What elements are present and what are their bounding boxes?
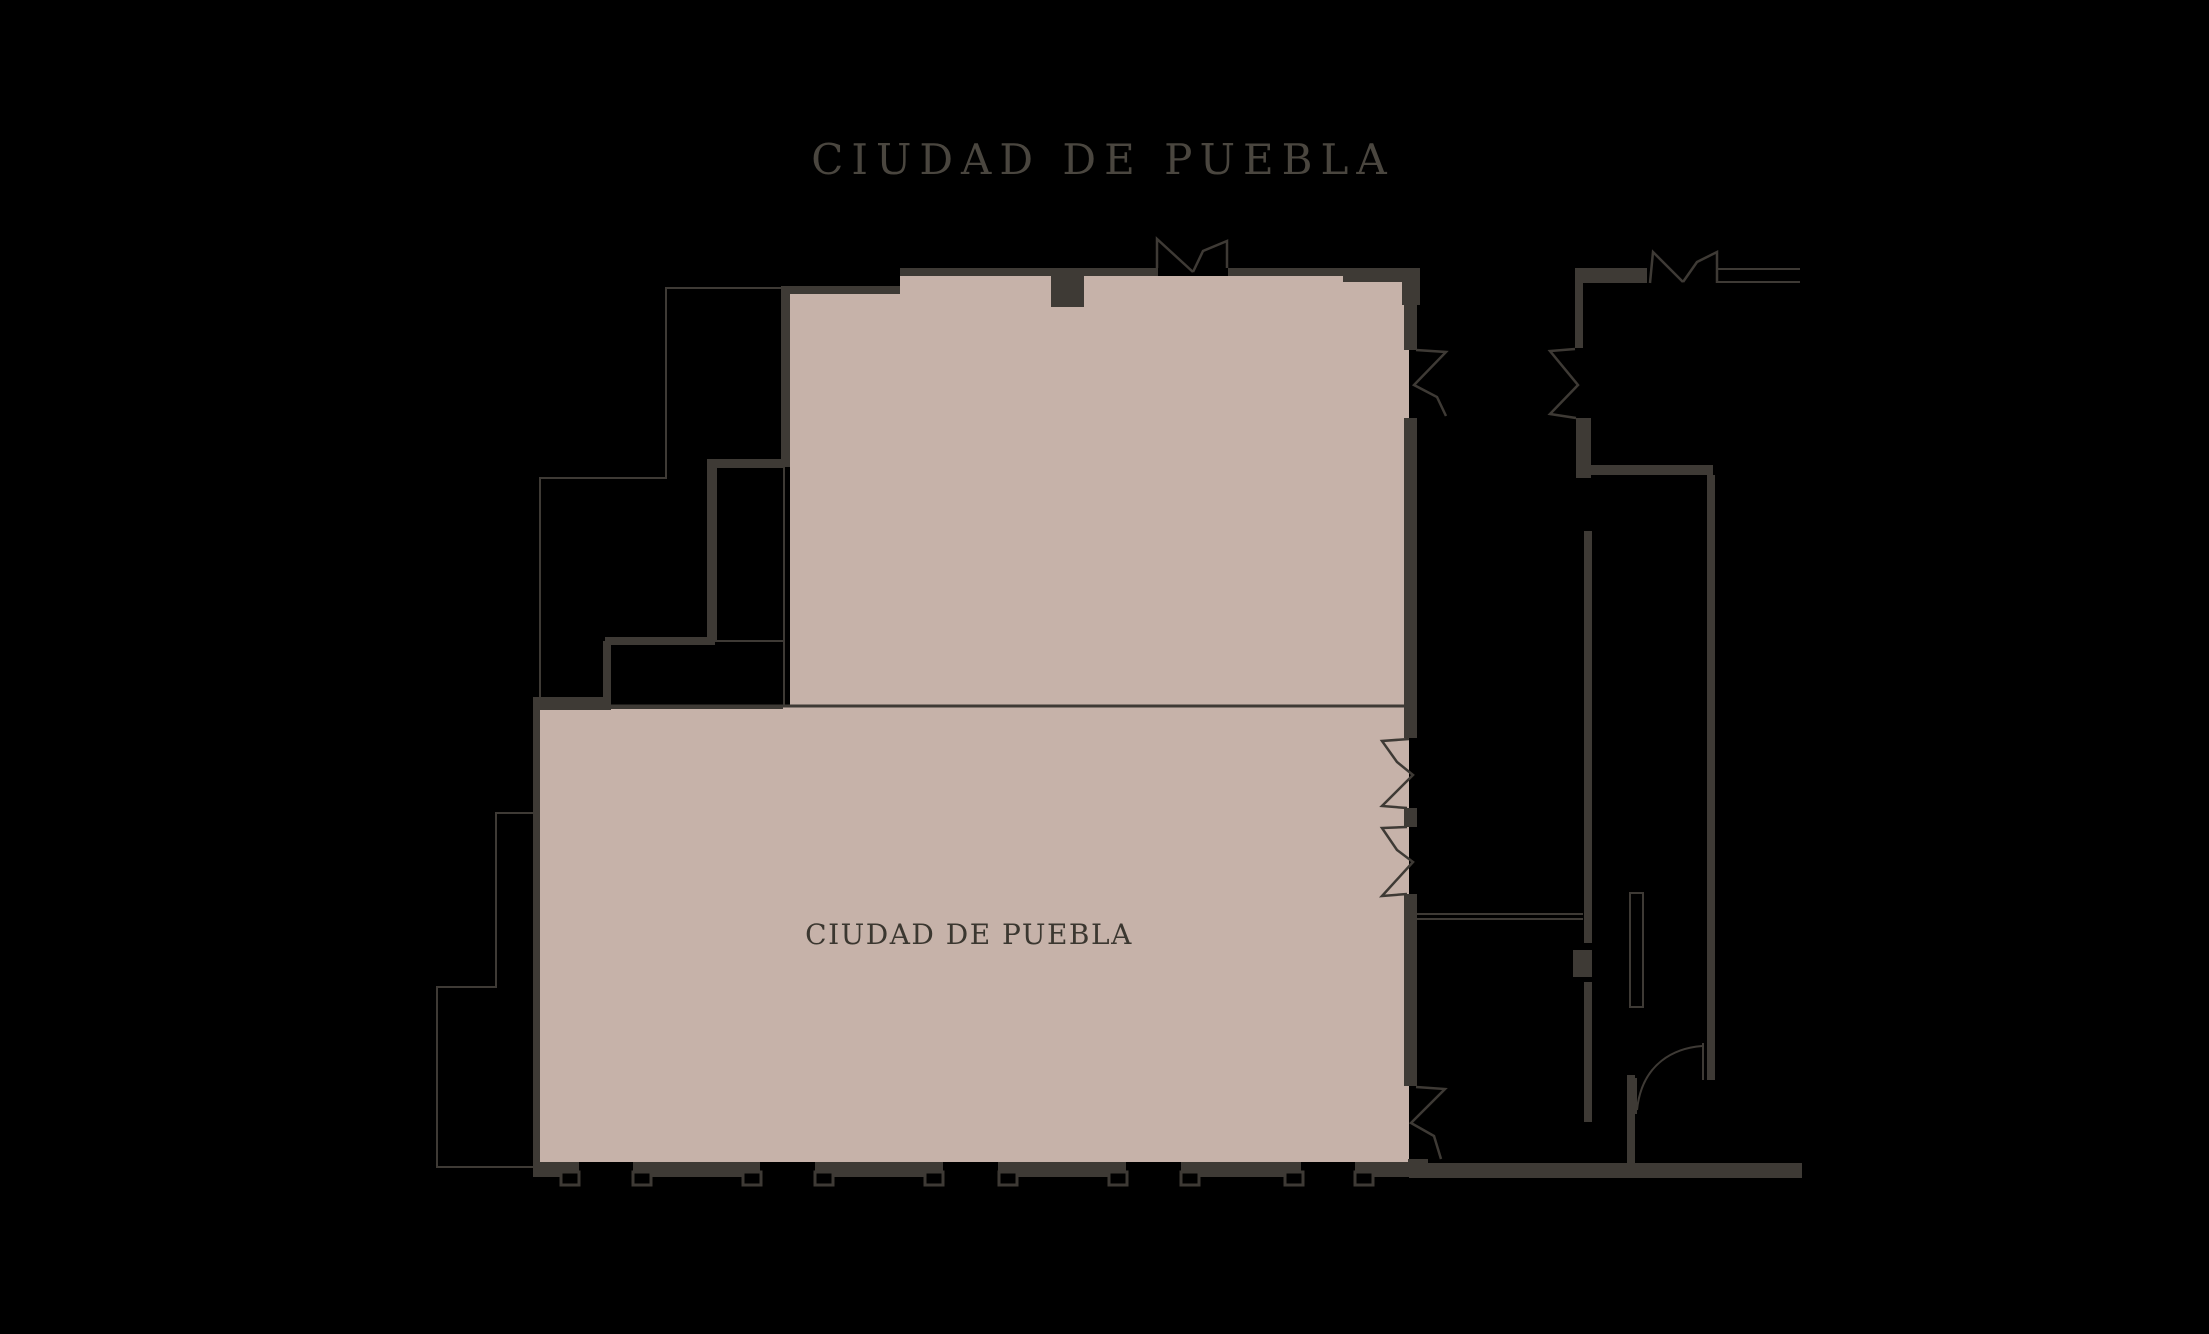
floor-plan-page: CIUDAD DE PUEBLA CIUDAD DE PUEBLA xyxy=(0,0,2209,1334)
annex-walls xyxy=(1409,268,1802,1178)
annex-left-wall-upper xyxy=(1575,268,1583,348)
upper-room-floor xyxy=(790,276,1417,705)
room-label: CIUDAD DE PUEBLA xyxy=(805,918,1133,951)
jamb-tick-icon xyxy=(633,1172,651,1185)
jog-wall-h2 xyxy=(605,637,715,645)
right-wall-mid xyxy=(1404,418,1417,705)
jamb-tick-icon xyxy=(1355,1172,1373,1185)
lower-room-left-wall xyxy=(533,697,540,1177)
lower-room-top-wall xyxy=(533,697,611,710)
wall-pier-block xyxy=(1051,268,1084,307)
annex-riser-wall xyxy=(1627,1075,1635,1163)
wall-break-icon xyxy=(1550,349,1578,418)
right-wall-seg2 xyxy=(1404,894,1417,1086)
jog-wall-v1 xyxy=(707,459,715,645)
jamb-tick-icon xyxy=(1109,1172,1127,1185)
jamb-tick-icon xyxy=(561,1172,579,1185)
annex-left-wall-low1 xyxy=(1584,531,1592,943)
bottom-facade-piers xyxy=(533,1162,1409,1177)
top-wall-main-band xyxy=(900,268,1158,276)
annex-right-wall xyxy=(1707,475,1715,1080)
left-step-outline xyxy=(437,813,533,1167)
wall-break-icon xyxy=(1414,350,1446,416)
jamb-tick-icon xyxy=(815,1172,833,1185)
left-wall-upper xyxy=(781,294,790,464)
annex-left-wall-mid xyxy=(1576,418,1591,478)
closet1-outline xyxy=(716,467,783,641)
door-swing-arc-icon xyxy=(1637,1046,1702,1110)
floor-plan-canvas: CIUDAD DE PUEBLA CIUDAD DE PUEBLA xyxy=(0,0,2209,1334)
unit-fill xyxy=(540,276,1417,1162)
annex-left-wall-low2 xyxy=(1584,982,1592,1122)
jamb-tick-icon xyxy=(743,1172,761,1185)
double-door-swing-icon xyxy=(1650,252,1717,283)
right-wall-upper xyxy=(1404,268,1417,350)
annex-top-wall xyxy=(1575,268,1647,283)
right-wall-seg1 xyxy=(1404,705,1417,738)
double-door-swing-icon xyxy=(1157,239,1227,272)
exterior-bottom-wall xyxy=(1409,1163,1802,1178)
jamb-tick-icon xyxy=(1181,1172,1199,1185)
jog-wall-h1 xyxy=(707,459,790,467)
annex-wall-pier xyxy=(1573,950,1592,977)
annex-cross-wall xyxy=(1591,465,1713,475)
jamb-tick-icon xyxy=(925,1172,943,1185)
left-annex-outline xyxy=(540,288,781,697)
page-title: CIUDAD DE PUEBLA xyxy=(811,135,1395,184)
column-outline xyxy=(1630,893,1643,1007)
right-wall-stub xyxy=(1404,808,1417,827)
jamb-tick-icon xyxy=(1285,1172,1303,1185)
jamb-tick-icon xyxy=(999,1172,1017,1185)
top-wall-left-band xyxy=(781,286,900,294)
wall-break-icon xyxy=(1411,1087,1445,1159)
